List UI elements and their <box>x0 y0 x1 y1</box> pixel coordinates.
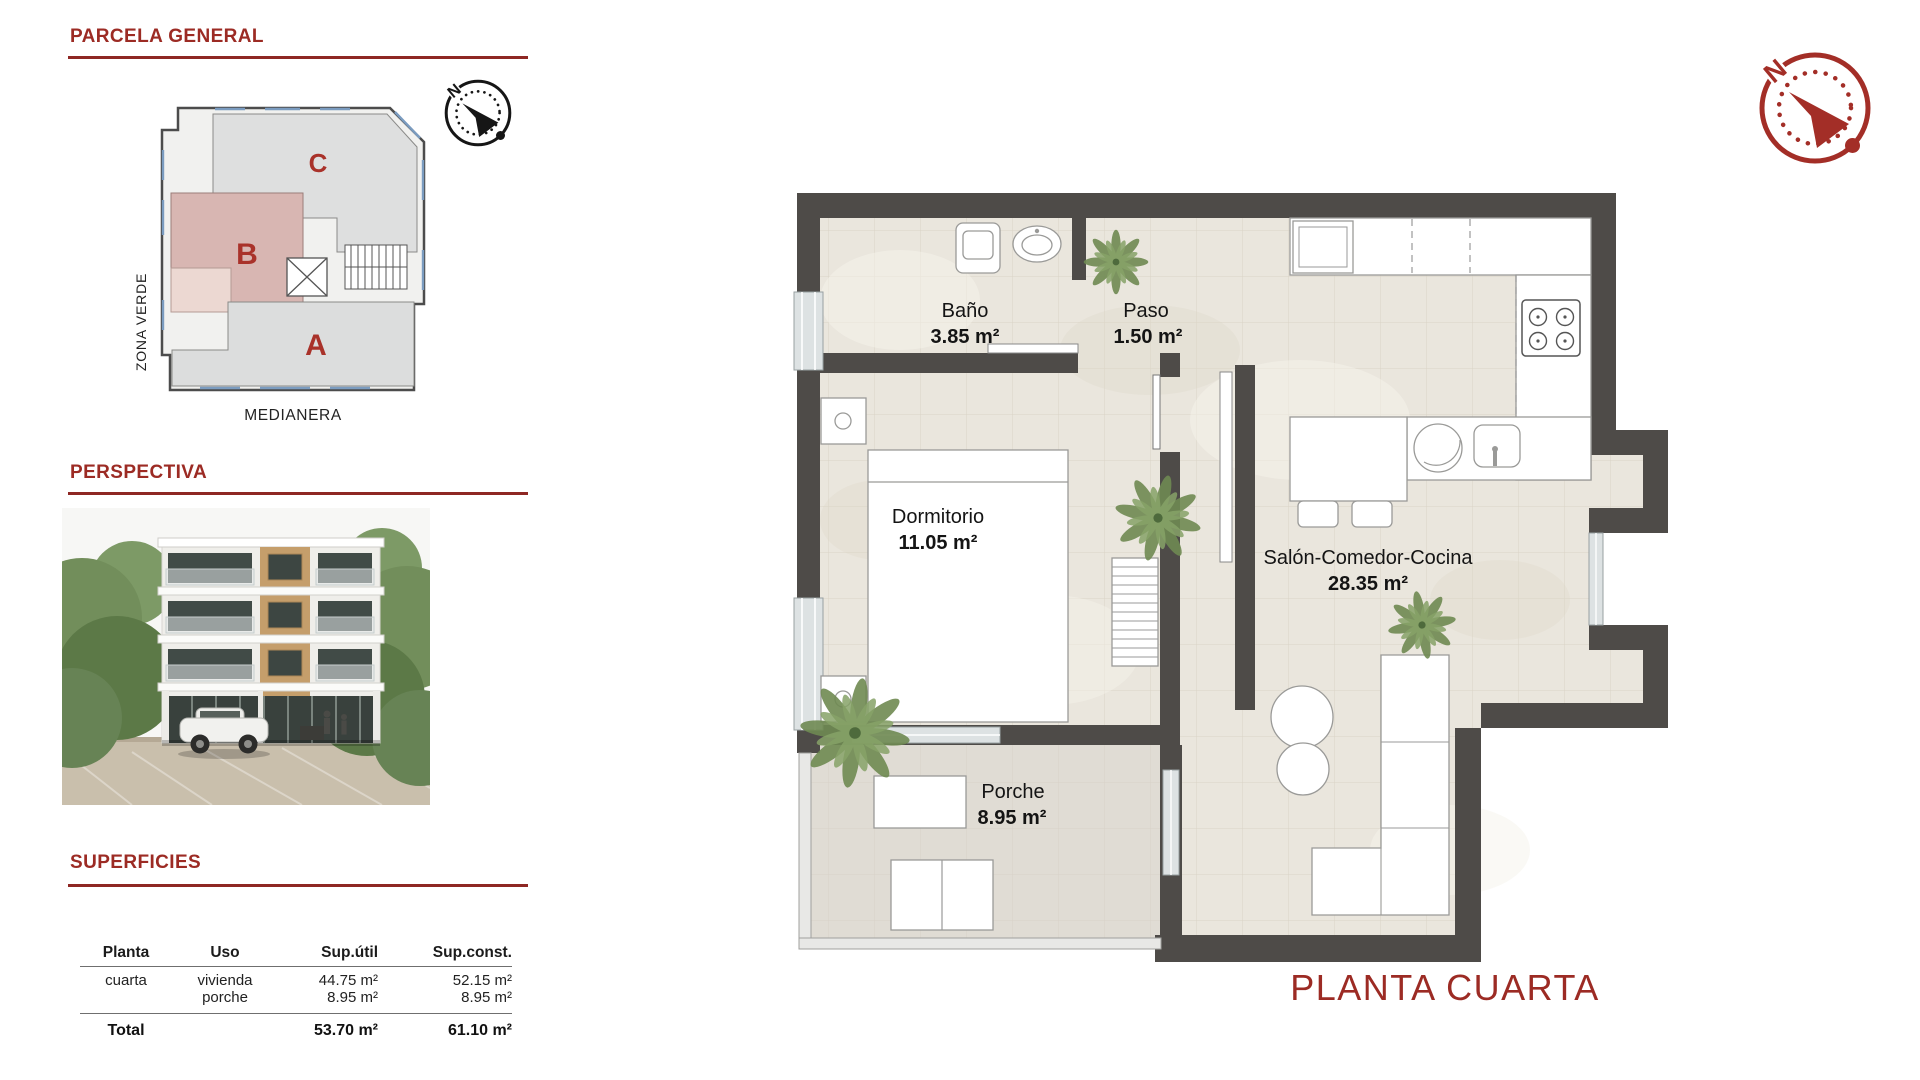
header-sup-util: Sup.útil <box>278 944 378 962</box>
porch-side-railing <box>799 753 811 940</box>
hob <box>1522 300 1580 356</box>
cell-sup-util: 8.95 m² <box>278 989 378 1006</box>
medianera-label: MEDIANERA <box>244 407 342 424</box>
cell-sup-util: 44.75 m² <box>278 972 378 989</box>
site-label-b: B <box>236 238 258 271</box>
coffee-table <box>1277 743 1329 795</box>
round-basin <box>1414 424 1462 472</box>
table-row: cuarta vivienda 44.75 m² 52.15 m² <box>80 972 512 989</box>
zona-verde-label: ZONA VERDE <box>133 273 149 371</box>
room-area: 8.95 m² <box>978 807 1047 829</box>
parcela-general-title: PARCELA GENERAL <box>70 26 264 48</box>
porch-lounger <box>891 860 993 930</box>
total-sup-const: 61.10 m² <box>378 1019 512 1043</box>
plan-title: PLANTA CUARTA <box>1290 967 1600 1008</box>
site-label-a: A <box>305 329 327 362</box>
site-plan: C B A ZONA VERDE MEDIANERA N <box>95 64 540 430</box>
room-name: Dormitorio <box>892 506 984 528</box>
perspectiva-title: PERSPECTIVA <box>70 462 207 484</box>
cell-sup-const: 8.95 m² <box>378 989 512 1006</box>
room-area: 11.05 m² <box>899 532 978 554</box>
room-area: 1.50 m² <box>1114 326 1183 348</box>
bathroom-sliding-door <box>988 344 1078 353</box>
superficies-table: Planta Uso Sup.útil Sup.const. cuarta vi… <box>80 944 512 1043</box>
room-area: 28.35 m² <box>1328 573 1408 595</box>
bathroom-sink <box>1013 226 1061 262</box>
porch-table <box>874 776 966 828</box>
parcela-rule <box>68 56 528 59</box>
cell-planta: cuarta <box>80 972 172 989</box>
kitchen-sink <box>1474 425 1520 467</box>
room-area: 3.85 m² <box>931 326 1000 348</box>
perspective-rendering <box>62 508 430 805</box>
plant <box>1084 230 1149 295</box>
north-compass-icon: N <box>1758 53 1868 161</box>
cell-uso: porche <box>172 989 278 1006</box>
cell-uso: vivienda <box>172 972 278 989</box>
table-divider <box>80 966 512 967</box>
bathroom-window <box>794 292 823 370</box>
total-label: Total <box>80 1019 172 1043</box>
north-compass-icon-small: N <box>444 81 510 145</box>
nightstand <box>821 398 866 444</box>
stairs-icon <box>345 245 407 289</box>
superficies-rule <box>68 884 528 887</box>
table-header: Planta Uso Sup.útil Sup.const. <box>80 944 512 962</box>
porch-sliding-door <box>1163 770 1179 875</box>
bed <box>868 450 1068 722</box>
cell-sup-const: 52.15 m² <box>378 972 512 989</box>
table-row: porche 8.95 m² 8.95 m² <box>80 989 512 1006</box>
coffee-table <box>1271 686 1333 748</box>
elevator-icon <box>287 258 327 296</box>
porch-front-railing <box>799 938 1161 949</box>
render-building <box>158 538 384 746</box>
room-name: Porche <box>981 781 1044 803</box>
bedroom-door-leaf <box>1153 375 1160 449</box>
table-total-row: Total 53.70 m² 61.10 m² <box>80 1019 512 1043</box>
header-uso: Uso <box>172 944 278 962</box>
perspectiva-rule <box>68 492 528 495</box>
total-sup-util: 53.70 m² <box>278 1019 378 1043</box>
room-name: Paso <box>1123 300 1169 322</box>
plan-sheet: PARCELA GENERAL C B A ZONA VERDE MEDIANE… <box>0 0 1920 1080</box>
site-label-c: C <box>309 148 328 178</box>
chair <box>1298 501 1338 527</box>
chair <box>1352 501 1392 527</box>
header-sup-const: Sup.const. <box>378 944 512 962</box>
site-section-b-porch <box>171 268 231 312</box>
table-divider <box>80 1013 512 1014</box>
toilet <box>956 223 1000 273</box>
hall-pocket-door <box>1220 372 1232 562</box>
fridge <box>1293 221 1353 273</box>
room-name: Baño <box>942 300 989 322</box>
island-table <box>1290 417 1407 501</box>
right-window <box>1589 533 1603 625</box>
floor-plan: Baño 3.85 m² Paso 1.50 m² Dormitorio 11.… <box>620 30 1920 1050</box>
bedroom-window <box>794 598 823 730</box>
superficies-title: SUPERFICIES <box>70 852 201 874</box>
wardrobe <box>1112 558 1158 666</box>
header-planta: Planta <box>80 944 172 962</box>
room-name: Salón-Comedor-Cocina <box>1264 547 1474 569</box>
